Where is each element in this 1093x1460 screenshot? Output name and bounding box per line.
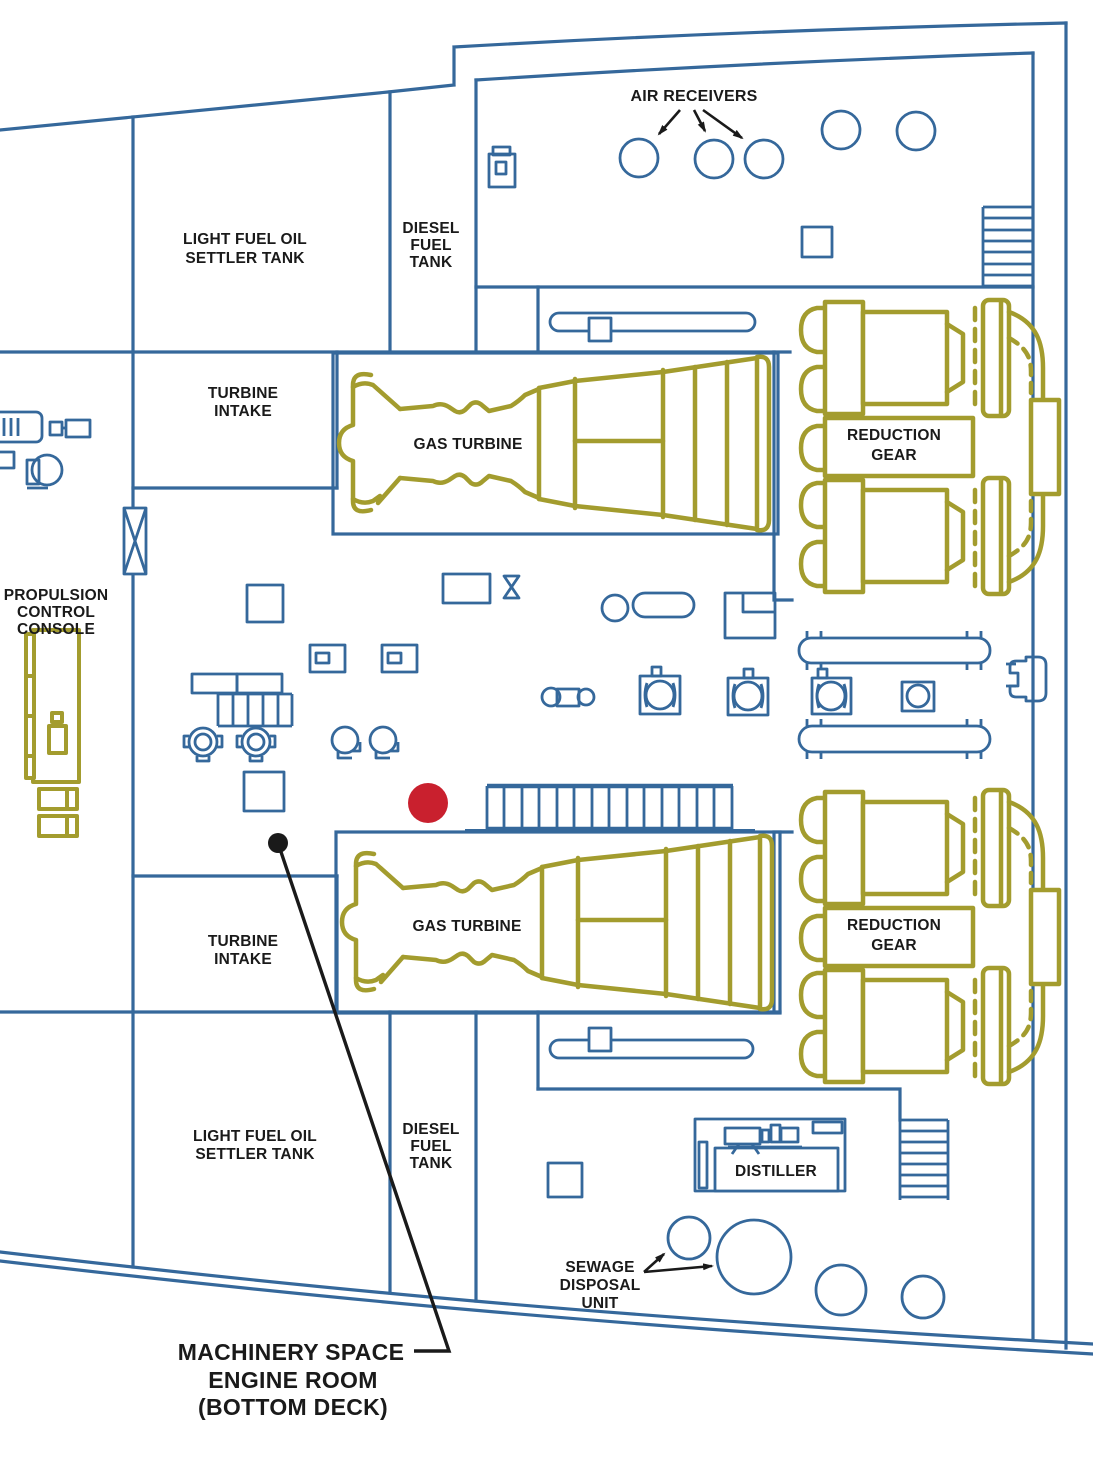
console-box-icon	[382, 645, 417, 672]
pump-icon-square	[640, 667, 680, 714]
air-receiver-circle	[897, 112, 935, 150]
hull-bottom-outer	[0, 1252, 1093, 1344]
label-propulsion-1: PROPULSION	[4, 587, 108, 604]
label-sewage-3: UNIT	[582, 1295, 619, 1312]
caption-line-3: (BOTTOM DECK)	[198, 1394, 388, 1420]
turbine-enclosure-lower	[336, 832, 780, 1013]
label-diesel-top-3: TANK	[410, 254, 453, 271]
label-lfo-bottom-2: SETTLER TANK	[195, 1146, 315, 1163]
label-propulsion-2: CONTROL	[17, 604, 95, 621]
arrow	[644, 1266, 712, 1272]
sewage-tank-circle	[668, 1217, 710, 1259]
air-receiver-circle	[695, 140, 733, 178]
air-receiver-circle	[822, 111, 860, 149]
reduction-gear-machine-lower	[801, 790, 1059, 1084]
label-reduction-gear-lower-2: GEAR	[871, 937, 917, 954]
motor-icon	[1006, 657, 1046, 701]
gauge-icon	[50, 420, 90, 437]
label-sewage-2: DISPOSAL	[560, 1277, 641, 1294]
label-diesel-bottom-3: TANK	[410, 1155, 453, 1172]
air-receiver-circle	[620, 139, 658, 177]
label-lfo-bottom-1: LIGHT FUEL OIL	[193, 1128, 317, 1145]
arrow	[694, 110, 705, 131]
label-lfo-top-1: LIGHT FUEL OIL	[183, 231, 307, 248]
label-diesel-bottom-2: FUEL	[410, 1138, 451, 1155]
red-location-marker	[408, 783, 448, 823]
label-gas-turbine-lower: GAS TURBINE	[413, 918, 522, 935]
damper-valve-icon	[124, 508, 146, 574]
heat-exchanger-icon	[799, 631, 990, 670]
label-reduction-gear-upper-1: REDUCTION	[847, 427, 941, 444]
label-diesel-top-1: DIESEL	[402, 220, 459, 237]
propulsion-control-console	[26, 630, 79, 836]
compressor-icon	[332, 727, 360, 758]
console-box-icon	[310, 645, 345, 672]
small-rect-left-edge	[0, 452, 14, 468]
pump-icon-square	[902, 682, 934, 711]
label-air-receivers: AIR RECEIVERS	[630, 88, 757, 105]
grating-icon-center	[465, 786, 755, 830]
arrow	[703, 110, 742, 138]
deck-line-1089	[538, 1089, 900, 1120]
tank-circle	[602, 595, 628, 621]
label-lfo-top-2: SETTLER TANK	[185, 250, 305, 267]
arrow	[659, 110, 680, 134]
tank-circle	[816, 1265, 866, 1315]
deck-plan-svg: AIR RECEIVERS LIGHT FUEL OIL SETTLER TAN…	[0, 0, 1093, 1460]
pump-icon-round	[184, 728, 222, 761]
engine-room-deck-plan: AIR RECEIVERS LIGHT FUEL OIL SETTLER TAN…	[0, 0, 1093, 1460]
label-propulsion-3: CONSOLE	[17, 621, 95, 638]
panel-icon-left-edge	[0, 412, 42, 442]
floor-square	[548, 1163, 582, 1197]
valve-icon	[504, 576, 519, 598]
distiller-unit	[695, 1119, 845, 1191]
floor-square	[247, 585, 283, 622]
sewage-tank-circle	[717, 1220, 791, 1294]
compressor-icon	[370, 727, 398, 758]
heat-exchanger-icon	[799, 719, 990, 759]
canister-icon	[489, 147, 515, 187]
caption-anchor-dot	[268, 833, 288, 853]
pump-icon-square	[812, 669, 851, 714]
air-receiver-arrows	[659, 110, 742, 138]
label-diesel-top-2: FUEL	[410, 237, 451, 254]
label-turbine-intake-top-1: TURBINE	[208, 385, 278, 402]
hull-top-inner	[476, 53, 1033, 80]
blue-equipment	[0, 111, 1046, 1318]
label-diesel-bottom-1: DIESEL	[402, 1121, 459, 1138]
label-reduction-gear-upper-2: GEAR	[871, 447, 917, 464]
rail-slider-upper	[550, 313, 755, 341]
label-sewage-1: SEWAGE	[565, 1259, 634, 1276]
air-receiver-circle	[745, 140, 783, 178]
stairs-icon-upper	[983, 207, 1033, 287]
tank-circle	[902, 1276, 944, 1318]
caption-line-2: ENGINE ROOM	[208, 1367, 377, 1393]
grating-icon-left	[192, 674, 292, 726]
tank-capsule	[633, 593, 694, 617]
blower-icon	[27, 455, 62, 488]
stairs-icon-lower	[900, 1120, 948, 1200]
floor-square	[244, 772, 284, 811]
pump-icon-round	[237, 728, 275, 761]
step-tank-icon	[725, 593, 775, 638]
gas-turbine-machine-upper	[339, 357, 769, 531]
equipment-rect	[443, 574, 490, 603]
label-gas-turbine-upper: GAS TURBINE	[414, 436, 523, 453]
annotations	[268, 110, 742, 1351]
label-turbine-intake-top-2: INTAKE	[214, 403, 272, 420]
reduction-gear-machine-upper	[801, 300, 1059, 594]
gear-bracket-lower	[774, 832, 792, 1012]
label-reduction-gear-lower-1: REDUCTION	[847, 917, 941, 934]
gas-turbine-machine-lower	[342, 836, 772, 1010]
label-turbine-intake-bottom-2: INTAKE	[214, 951, 272, 968]
turbine-enclosure-upper	[333, 353, 778, 534]
twin-pump-icon	[542, 688, 594, 706]
hatch-square	[802, 227, 832, 257]
pump-icon-square	[728, 669, 768, 715]
label-turbine-intake-bottom-1: TURBINE	[208, 933, 278, 950]
rail-slider-lower	[550, 1028, 753, 1058]
caption-line-1: MACHINERY SPACE	[178, 1339, 404, 1365]
label-distiller: DISTILLER	[735, 1163, 817, 1180]
